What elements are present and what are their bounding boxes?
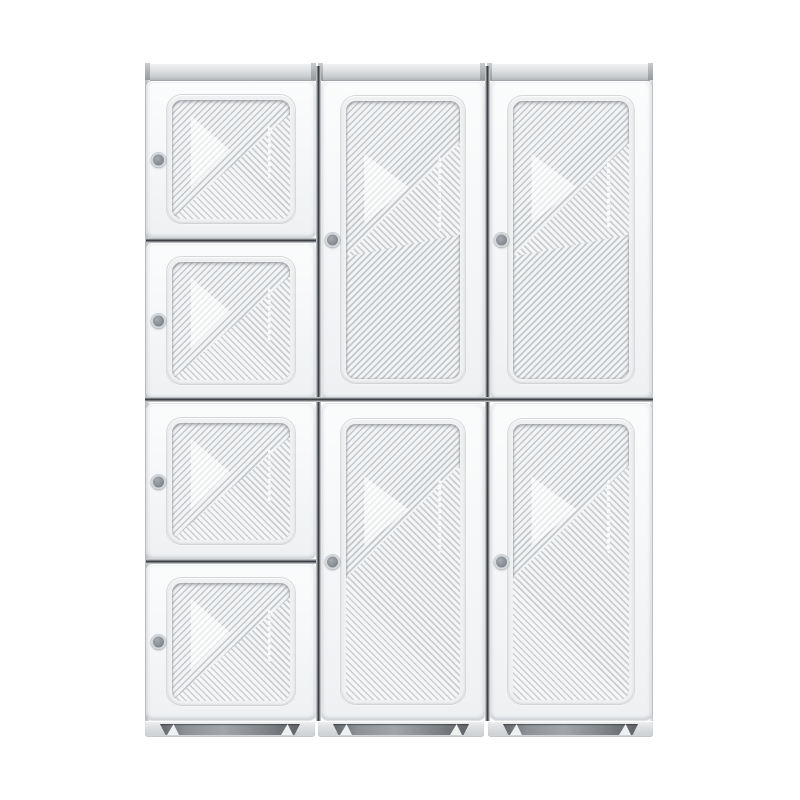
main-horizontal-groove [145,397,653,402]
highlight-streak [268,609,271,664]
door-panel [508,96,634,384]
door-knob[interactable] [151,314,166,329]
plinth-left [145,721,315,737]
sheen-reflection [346,424,460,700]
highlight-streak [268,288,271,343]
plinth-recess [160,724,300,735]
door-knob[interactable] [151,474,166,489]
ribbed-texture [172,262,290,380]
door-knob[interactable] [494,233,509,248]
highlight-streak [268,449,271,504]
ribbed-texture [172,100,290,219]
column-divider-groove [316,66,321,721]
door-knob[interactable] [325,555,340,570]
highlight-streak [268,126,271,182]
ribbed-texture [346,101,460,379]
ribbed-texture [172,583,290,701]
door-panel [508,419,634,705]
sheen-reflection [172,100,290,219]
door-left-2[interactable] [146,243,316,399]
ribbed-texture [346,424,460,700]
sheen-reflection [172,262,290,380]
row-divider-groove [146,238,316,243]
highlight-streak [438,479,441,554]
highlight-streak [438,157,441,232]
wardrobe-cabinet [145,63,653,737]
sheen-reflection [513,101,629,379]
door-left-4[interactable] [146,564,316,720]
door-middle-bottom[interactable] [321,404,485,720]
top-trim-middle [318,63,485,81]
door-knob[interactable] [151,152,166,167]
row-divider-groove [146,559,316,564]
plinth-recess [333,724,469,735]
plinth-right [488,721,653,737]
door-panel [167,257,295,385]
column-divider-groove [485,66,490,721]
top-trim-left [145,63,316,81]
door-right-top[interactable] [490,81,652,399]
product-image [0,0,800,800]
door-panel [167,418,295,545]
ribbed-texture [172,423,290,540]
door-right-bottom[interactable] [490,404,652,720]
sheen-reflection [513,424,629,700]
sheen-reflection [172,423,290,540]
door-left-1[interactable] [146,81,316,238]
door-knob[interactable] [494,555,509,570]
sheen-reflection [172,583,290,701]
plinth-recess [503,724,638,735]
door-middle-top[interactable] [321,81,485,399]
door-knob[interactable] [151,635,166,650]
ribbed-texture [513,424,629,700]
top-trim-right [487,63,653,81]
highlight-streak [607,479,610,554]
door-panel [167,578,295,706]
plinth-middle [318,721,484,737]
door-panel [341,419,465,705]
door-panel [167,95,295,224]
door-left-3[interactable] [146,404,316,559]
highlight-streak [607,157,610,232]
door-knob[interactable] [325,233,340,248]
door-panel [341,96,465,384]
ribbed-texture [513,101,629,379]
sheen-reflection [346,101,460,379]
